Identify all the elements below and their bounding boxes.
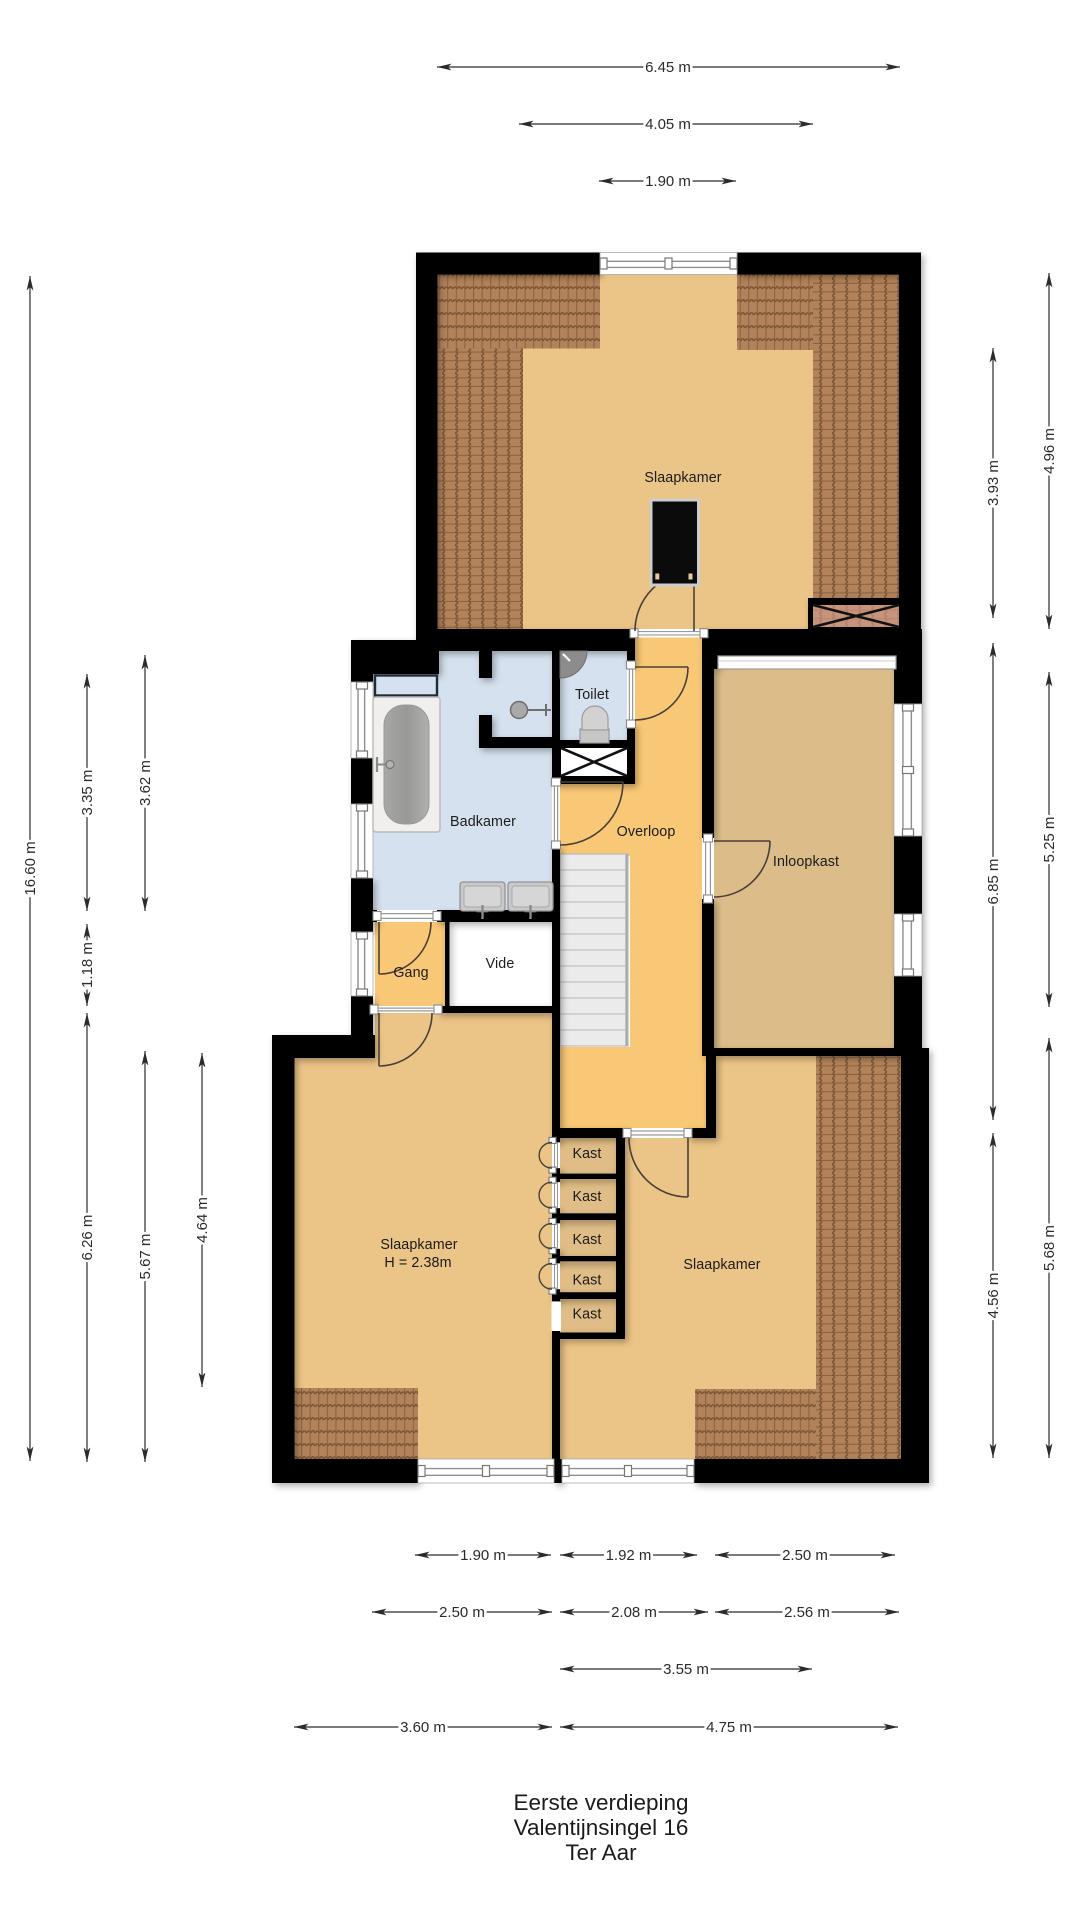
svg-text:2.50 m: 2.50 m bbox=[782, 1547, 828, 1564]
svg-text:5.68 m: 5.68 m bbox=[1041, 1225, 1058, 1271]
svg-text:4.75 m: 4.75 m bbox=[706, 1719, 752, 1736]
svg-text:Kast: Kast bbox=[572, 1307, 601, 1323]
svg-text:Gang: Gang bbox=[393, 965, 428, 981]
svg-text:6.26 m: 6.26 m bbox=[79, 1215, 96, 1261]
svg-text:4.05 m: 4.05 m bbox=[645, 116, 691, 133]
svg-text:Kast: Kast bbox=[572, 1232, 601, 1248]
svg-text:Vide: Vide bbox=[486, 956, 515, 972]
svg-text:6.85 m: 6.85 m bbox=[985, 859, 1002, 905]
svg-text:Ter Aar: Ter Aar bbox=[565, 1840, 637, 1865]
svg-text:3.93 m: 3.93 m bbox=[985, 460, 1002, 506]
svg-text:Eerste verdieping: Eerste verdieping bbox=[513, 1790, 688, 1815]
svg-text:16.60 m: 16.60 m bbox=[22, 841, 39, 895]
svg-text:1.92 m: 1.92 m bbox=[606, 1547, 652, 1564]
svg-text:Badkamer: Badkamer bbox=[450, 814, 516, 830]
svg-text:3.55 m: 3.55 m bbox=[663, 1661, 709, 1678]
svg-text:3.62 m: 3.62 m bbox=[137, 760, 154, 806]
svg-text:Kast: Kast bbox=[572, 1146, 601, 1162]
svg-text:4.56 m: 4.56 m bbox=[985, 1273, 1002, 1319]
svg-text:5.25 m: 5.25 m bbox=[1041, 817, 1058, 863]
svg-text:6.45 m: 6.45 m bbox=[645, 59, 691, 76]
svg-text:Slaapkamer: Slaapkamer bbox=[644, 470, 721, 486]
svg-text:2.56 m: 2.56 m bbox=[784, 1604, 830, 1621]
svg-text:4.96 m: 4.96 m bbox=[1041, 428, 1058, 474]
svg-text:Valentijnsingel 16: Valentijnsingel 16 bbox=[514, 1815, 689, 1840]
svg-text:3.35 m: 3.35 m bbox=[79, 770, 96, 816]
svg-text:5.67 m: 5.67 m bbox=[137, 1234, 154, 1280]
svg-text:4.64 m: 4.64 m bbox=[194, 1197, 211, 1243]
svg-text:Kast: Kast bbox=[572, 1189, 601, 1205]
svg-text:2.08 m: 2.08 m bbox=[611, 1604, 657, 1621]
svg-text:1.90 m: 1.90 m bbox=[645, 173, 691, 190]
svg-text:H = 2.38m: H = 2.38m bbox=[384, 1255, 451, 1271]
svg-text:Overloop: Overloop bbox=[617, 824, 676, 840]
svg-text:Slaapkamer: Slaapkamer bbox=[683, 1257, 760, 1273]
svg-text:Inloopkast: Inloopkast bbox=[773, 854, 839, 870]
svg-text:1.18 m: 1.18 m bbox=[79, 942, 96, 988]
svg-text:Slaapkamer: Slaapkamer bbox=[380, 1237, 457, 1253]
svg-text:Toilet: Toilet bbox=[575, 687, 609, 703]
svg-text:2.50 m: 2.50 m bbox=[439, 1604, 485, 1621]
svg-text:3.60 m: 3.60 m bbox=[400, 1719, 446, 1736]
svg-text:1.90 m: 1.90 m bbox=[460, 1547, 506, 1564]
svg-text:Kast: Kast bbox=[572, 1273, 601, 1289]
